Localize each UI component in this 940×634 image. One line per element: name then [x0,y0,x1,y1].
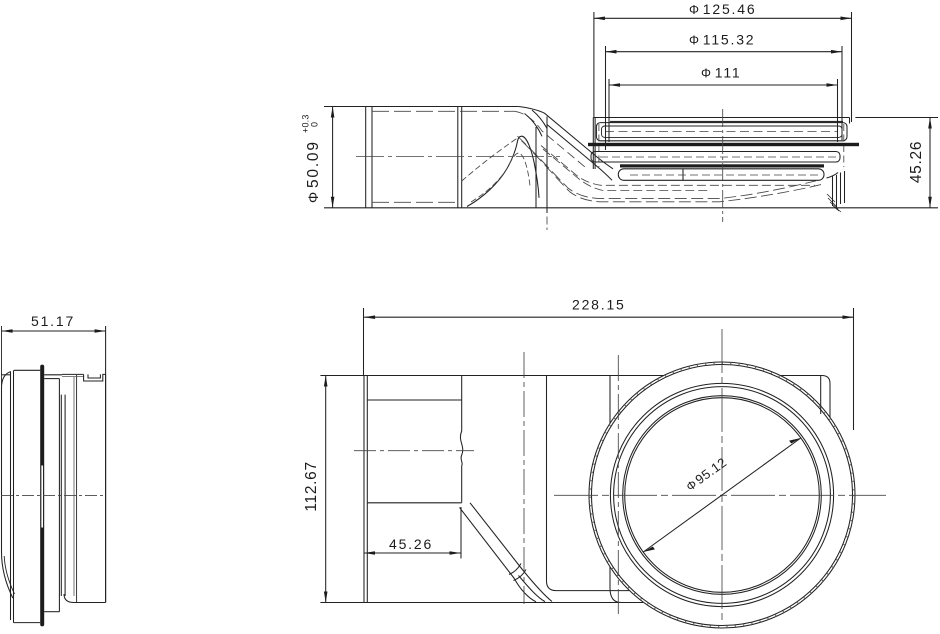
svg-text:Φ115.32: Φ115.32 [689,32,755,48]
svg-text:Φ125.46: Φ125.46 [689,1,756,17]
svg-text:112.67: 112.67 [303,461,320,511]
svg-text:51.17: 51.17 [31,313,75,329]
svg-text:0: 0 [310,122,320,127]
svg-text:228.15: 228.15 [572,297,626,313]
svg-text:45.26: 45.26 [908,141,925,183]
svg-text:Φ111: Φ111 [701,65,741,81]
svg-text:Φ50.09: Φ50.09 [305,140,322,203]
svg-text:45.26: 45.26 [389,536,433,552]
